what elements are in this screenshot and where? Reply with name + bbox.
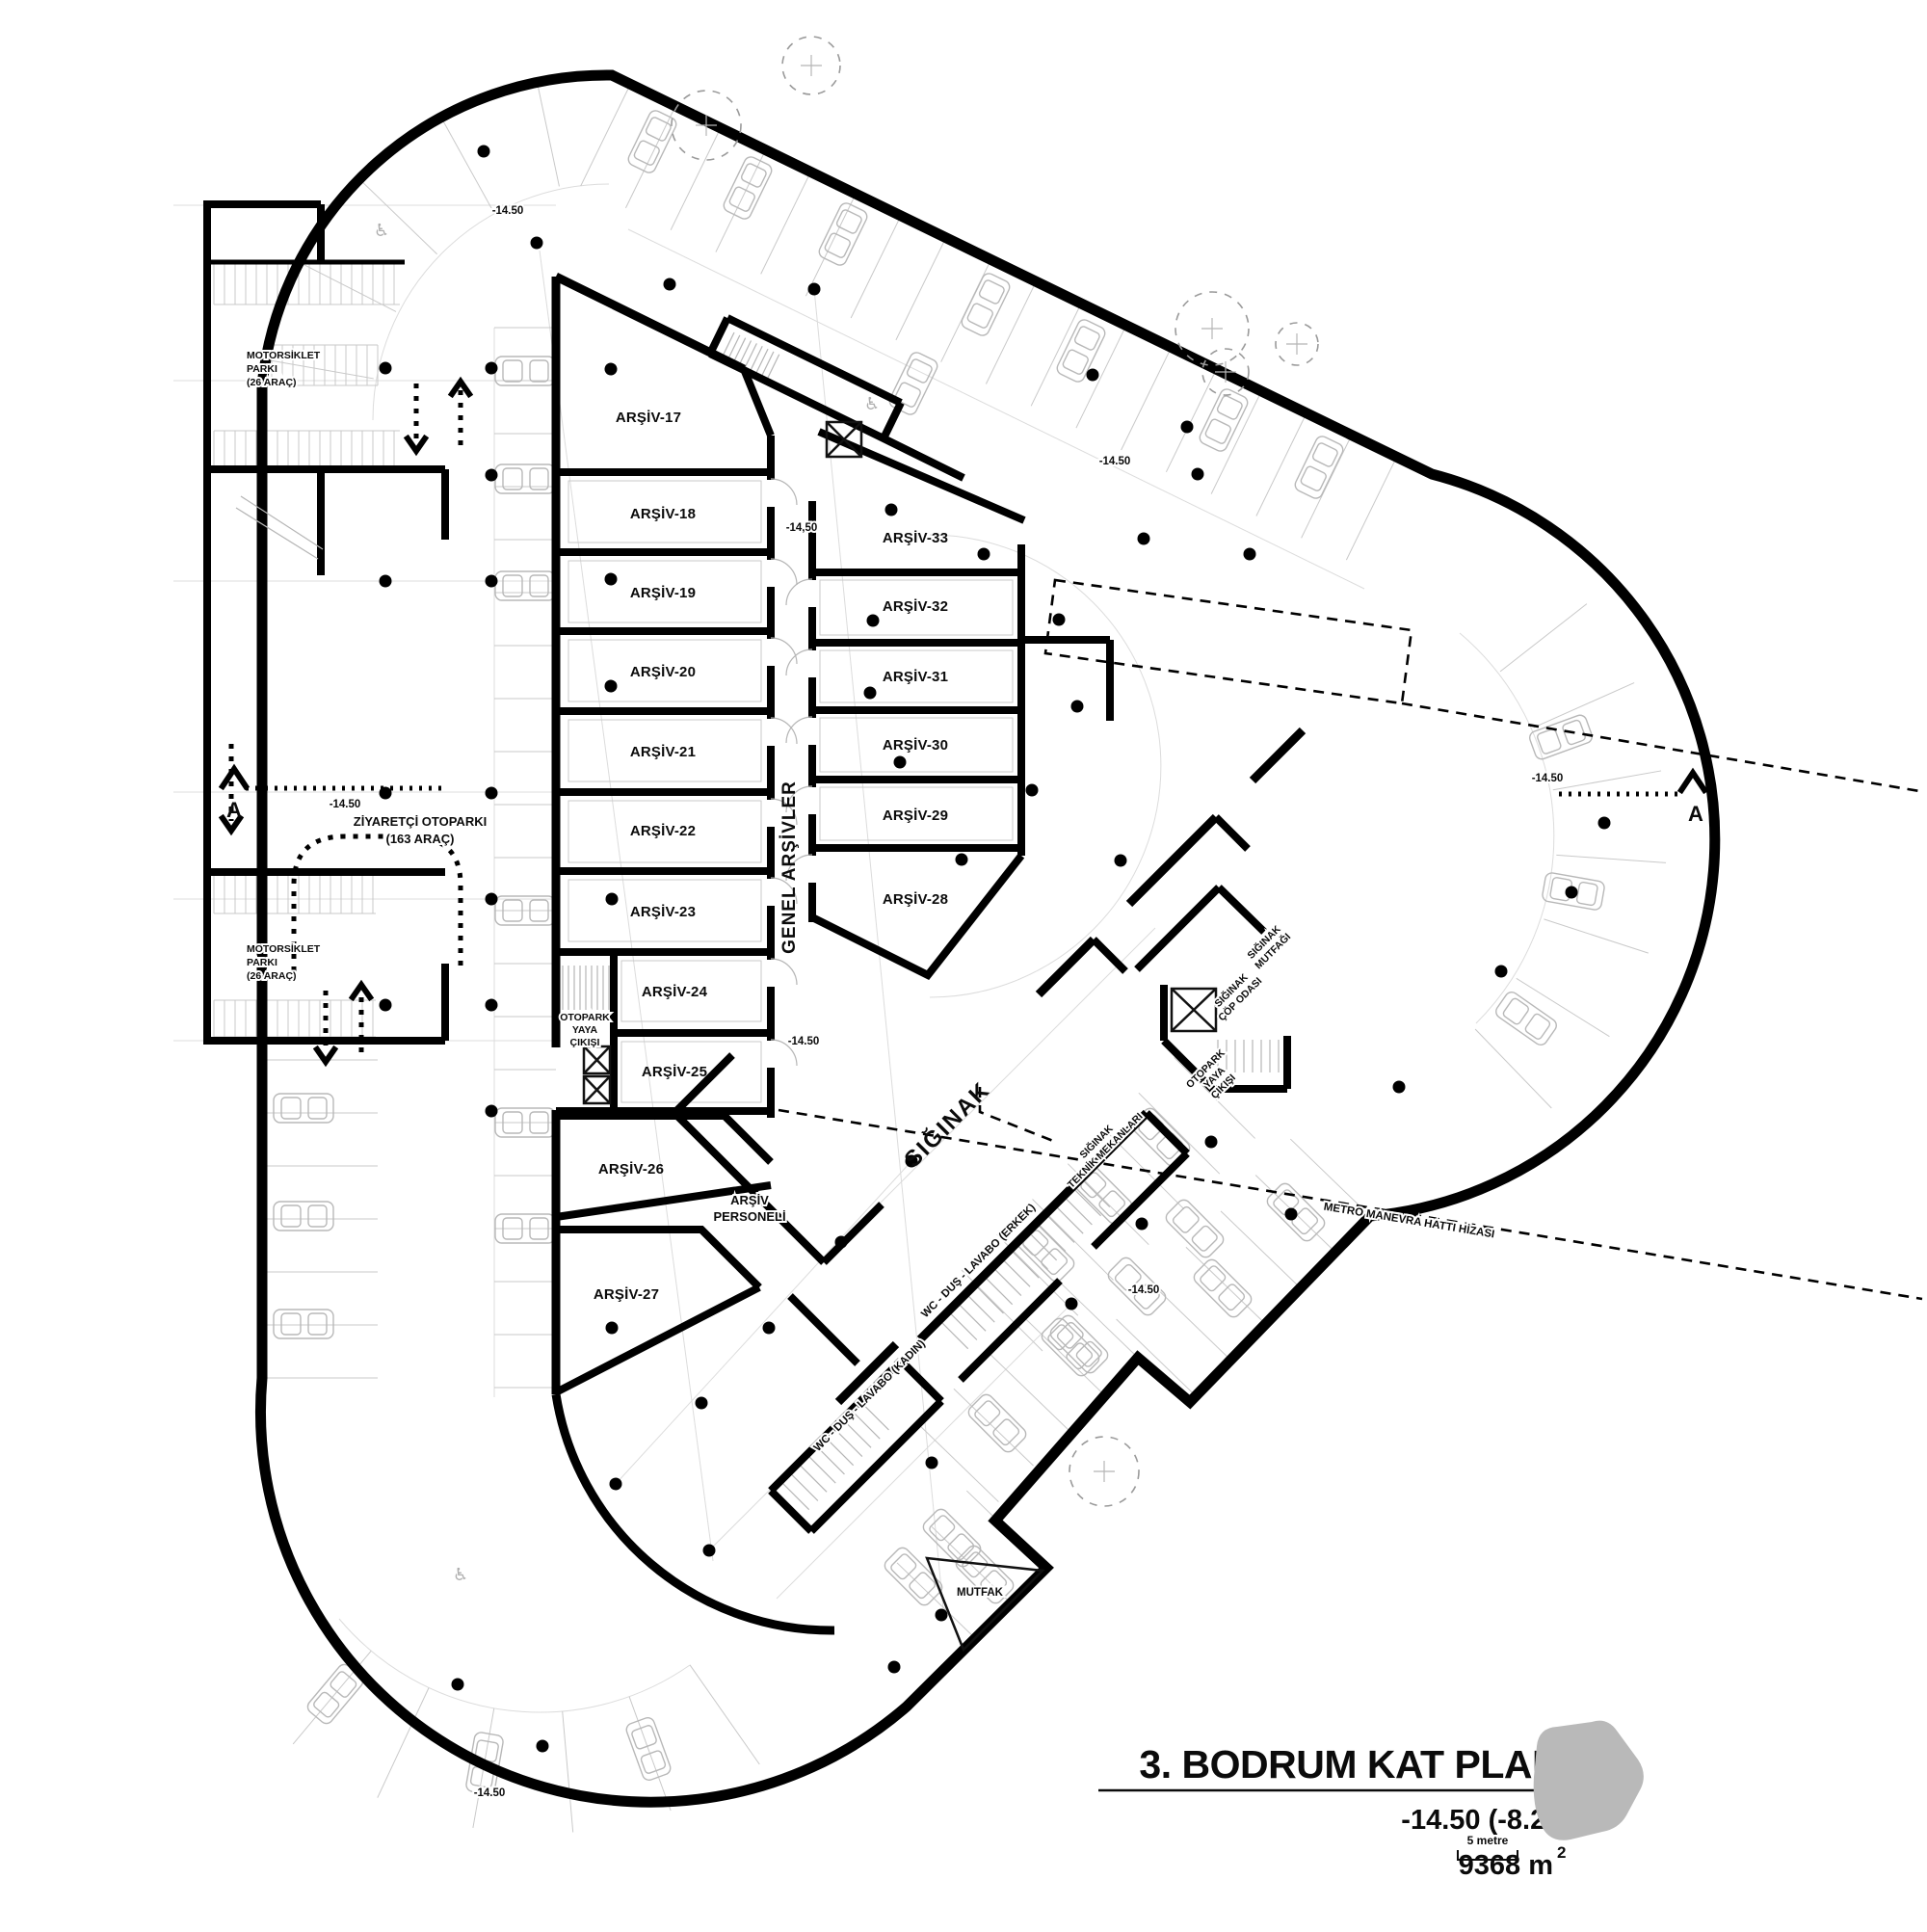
shelter-kitchen-label: SIĞINAK MUTFAĞI <box>1243 921 1293 971</box>
plan-title: 3. BODRUM KAT PLANI <box>1139 1742 1571 1786</box>
room-label: ARŞİV-28 <box>883 891 948 908</box>
level-marker: -14.50 <box>474 1787 506 1799</box>
svg-text:TEKNİK MEKANLARI: TEKNİK MEKANLARI <box>1065 1110 1145 1190</box>
svg-text:PARKI: PARKI <box>247 363 277 375</box>
room-label: ARŞİV-32 <box>883 598 948 615</box>
svg-text:ZİYARETÇİ OTOPARKI: ZİYARETÇİ OTOPARKI <box>354 814 487 829</box>
section-marker-right: A <box>1559 773 1704 826</box>
wc-men-label: WC - DUŞ - LAVABO (ERKEK) <box>919 1202 1038 1320</box>
svg-text:WC - DUŞ - LAVABO (ERKEK): WC - DUŞ - LAVABO (ERKEK) <box>919 1202 1038 1320</box>
floor-plan-page: A A ♿♿♿ ARŞİV-17 ARŞİV-18 ARŞİV-19 ARŞİV… <box>0 0 1927 1927</box>
svg-text:ÇIKIŞI: ÇIKIŞI <box>570 1037 600 1048</box>
room-label: ARŞİV-24 <box>642 984 708 1000</box>
left-core-elevators <box>584 1046 610 1103</box>
room-label: ARŞİV-21 <box>630 744 696 760</box>
room-label: ARŞİV-30 <box>883 737 948 754</box>
logo-building-footprint <box>1534 1721 1644 1840</box>
svg-text:PERSONELİ: PERSONELİ <box>713 1209 785 1224</box>
archive-right-walls <box>812 432 1110 975</box>
room-label: ARŞİV-29 <box>883 807 948 824</box>
top-stair-core <box>710 318 963 478</box>
room-label: ARŞİV-17 <box>616 410 681 426</box>
svg-text:♿: ♿ <box>864 394 880 413</box>
svg-text:♿: ♿ <box>374 221 389 240</box>
room-label: ARŞİV-20 <box>630 664 696 680</box>
svg-text:MOTORSİKLET: MOTORSİKLET <box>247 942 321 955</box>
svg-text:MOTORSİKLET: MOTORSİKLET <box>247 349 321 361</box>
room-label: ARŞİV-33 <box>883 530 948 546</box>
svg-text:(26 ARAÇ): (26 ARAÇ) <box>247 970 297 982</box>
svg-text:PARKI: PARKI <box>247 957 277 968</box>
svg-text:GENEL ARŞİVLER: GENEL ARŞİVLER <box>779 781 800 954</box>
left-annex-walls <box>207 204 445 1041</box>
section-letter: A <box>226 798 242 822</box>
plan-area: 9368 m <box>1459 1850 1553 1881</box>
room-label: ARŞİV-31 <box>883 669 948 685</box>
svg-text:YAYA: YAYA <box>572 1024 598 1036</box>
svg-text:♿: ♿ <box>453 1565 468 1584</box>
svg-text:ARŞİV: ARŞİV <box>730 1193 769 1207</box>
motorcycle-park-label-bottom: MOTORSİKLET PARKI (26 ARAÇ) <box>247 942 321 982</box>
svg-text:SIĞINAK: SIĞINAK <box>899 1076 995 1173</box>
level-marker: -14.50 <box>330 799 361 810</box>
scale-label: 5 metre <box>1467 1834 1509 1847</box>
archive-left-walls <box>556 369 771 1392</box>
room-label: ARŞİV-18 <box>630 506 696 522</box>
svg-text:(26 ARAÇ): (26 ARAÇ) <box>247 377 297 388</box>
room-label: ARŞİV-26 <box>598 1161 664 1178</box>
motorcycle-park-label-top: MOTORSİKLET PARKI (26 ARAÇ) <box>247 349 321 388</box>
parking-exit-label-right: OTOPARK YAYA ÇIKIŞI <box>1184 1047 1246 1109</box>
svg-text:OTOPARK: OTOPARK <box>560 1012 610 1023</box>
outer-building-wall <box>260 75 1714 1802</box>
room-label: ARŞİV-25 <box>642 1064 707 1080</box>
general-archives-label: GENEL ARŞİVLER <box>779 781 800 954</box>
level-marker: -14.50 <box>1128 1284 1160 1296</box>
section-letter: A <box>1688 802 1703 826</box>
title-block: 3. BODRUM KAT PLANI -14.50 (-8.20) 9368 … <box>1098 1721 1644 1881</box>
level-marker: -14.50 <box>1532 773 1564 784</box>
room-label: ARŞİV-22 <box>630 823 696 839</box>
level-marker: -14.50 <box>788 1036 820 1047</box>
kitchen-label: MUTFAK <box>957 1587 1004 1599</box>
visitor-parking-label: ZİYARETÇİ OTOPARKI (163 ARAÇ) <box>354 814 487 846</box>
parking-exit-label-left: OTOPARK YAYA ÇIKIŞI <box>560 1012 610 1048</box>
level-marker: -14.50 <box>492 205 524 217</box>
level-marker: -14,50 <box>786 522 818 534</box>
shelter-label: SIĞINAK <box>899 1076 995 1173</box>
room-label: ARŞİV-27 <box>594 1286 659 1303</box>
level-marker: -14.50 <box>1099 456 1131 467</box>
room-label: ARŞİV-19 <box>630 585 696 601</box>
floor-plan-canvas: A A ♿♿♿ ARŞİV-17 ARŞİV-18 ARŞİV-19 ARŞİV… <box>0 0 1927 1927</box>
room-label: ARŞİV-23 <box>630 904 696 920</box>
svg-text:(163 ARAÇ): (163 ARAÇ) <box>385 832 454 846</box>
plan-area-sup: 2 <box>1557 1843 1566 1862</box>
parked-car-symbols <box>274 109 1605 1796</box>
